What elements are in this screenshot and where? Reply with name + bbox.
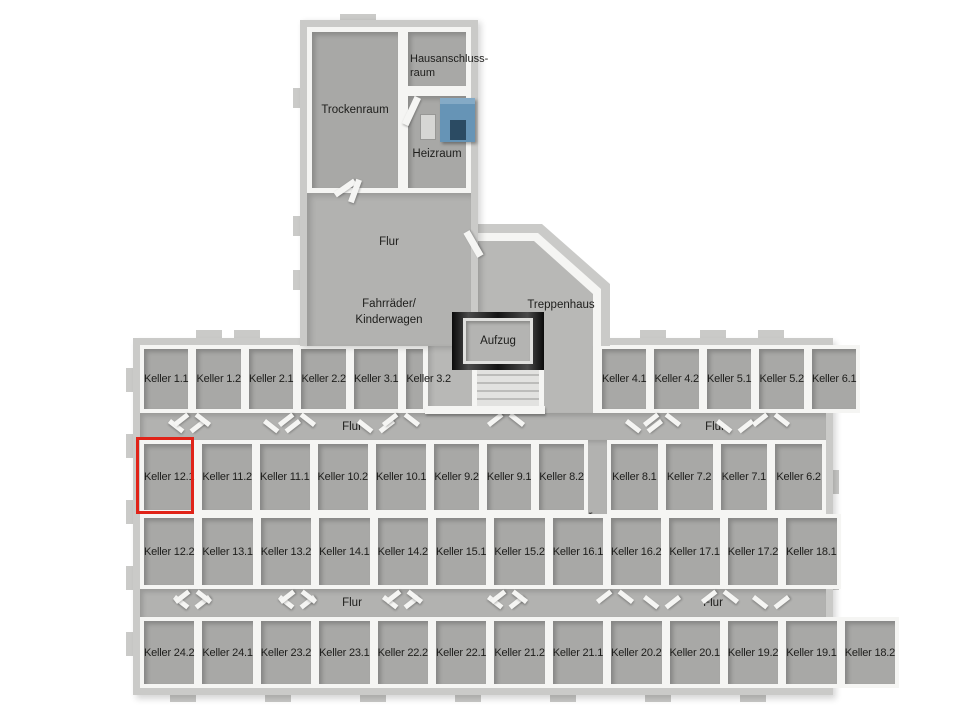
room-keller-22-1: Keller 22.1	[432, 617, 490, 688]
flur-label: Flur	[330, 597, 374, 609]
room-label: Treppenhaus	[500, 299, 622, 311]
room-label: Keller 16.1	[553, 546, 603, 558]
corridor-flur-lower: Flur Flur	[140, 589, 826, 617]
room-label: Heizraum	[408, 148, 466, 160]
room-label: Keller 8.1	[612, 471, 656, 483]
room-label: Keller 6.1	[812, 373, 856, 385]
room-label: Keller 23.1	[319, 647, 369, 659]
room-label: Keller 10.2	[318, 471, 368, 483]
room-keller-10-1: Keller 10.1	[372, 440, 430, 514]
upper-wing: Trockenraum Hausanschluss- raum Heizraum…	[300, 20, 478, 346]
room-keller-21-1: Keller 21.1	[549, 617, 607, 688]
room-label: Keller 7.2	[667, 471, 711, 483]
room-label: Keller 21.1	[553, 647, 603, 659]
room-keller-13-2: Keller 13.2	[257, 514, 315, 589]
room-label: raum	[410, 66, 466, 80]
room-keller-19-2: Keller 19.2	[724, 617, 782, 688]
room-label: Keller 2.2	[301, 373, 345, 385]
room-label: Keller 17.1	[669, 546, 719, 558]
room-label: Keller 19.1	[786, 647, 836, 659]
keller-row-2-left-group: Keller 12.1Keller 11.2Keller 11.1Keller …	[140, 440, 558, 514]
boiler-unit	[440, 98, 475, 142]
room-hausanschlussraum: Hausanschluss- raum	[403, 27, 471, 91]
room-label: Keller 14.2	[378, 546, 428, 558]
keller-row-2: Keller 12.1Keller 11.2Keller 11.1Keller …	[140, 440, 826, 514]
room-keller-4-2: Keller 4.2	[650, 345, 702, 413]
room-label: Keller 23.2	[261, 647, 311, 659]
wall-pillar	[360, 694, 386, 702]
room-keller-9-1: Keller 9.1	[483, 440, 535, 514]
room-keller-3-1: Keller 3.1	[350, 345, 402, 413]
room-label: Keller 10.1	[376, 471, 426, 483]
room-label: Keller 5.1	[707, 373, 751, 385]
room-label: Keller 19.2	[728, 647, 778, 659]
room-keller-2-1: Keller 2.1	[245, 345, 297, 413]
room-keller-12-2: Keller 12.2	[140, 514, 198, 589]
wall-pillar	[740, 694, 766, 702]
room-label: Keller 8.2	[539, 471, 583, 483]
room-label: Keller 21.2	[494, 647, 544, 659]
room-keller-17-1: Keller 17.1	[665, 514, 723, 589]
keller-row-3: Keller 12.2Keller 13.1Keller 13.2Keller …	[140, 514, 826, 589]
wall-pillar	[455, 694, 481, 702]
room-label: Keller 3.1	[354, 373, 398, 385]
room-label: Keller 16.2	[611, 546, 661, 558]
wall-pillar	[265, 694, 291, 702]
room-label: Keller 12.2	[144, 546, 194, 558]
room-keller-18-2: Keller 18.2	[841, 617, 899, 688]
room-keller-7-1: Keller 7.1	[717, 440, 772, 514]
room-keller-14-1: Keller 14.1	[315, 514, 373, 589]
room-label: Keller 22.1	[436, 647, 486, 659]
wall-pillar	[758, 330, 784, 338]
flur-label: Flur	[330, 421, 374, 433]
room-trockenraum: Trockenraum	[307, 27, 403, 193]
room-keller-15-2: Keller 15.2	[490, 514, 548, 589]
room-keller-11-1: Keller 11.1	[256, 440, 314, 514]
room-flur-fahrraeder: Flur Fahrräder/ Kinderwagen	[307, 193, 471, 346]
room-keller-16-2: Keller 16.2	[607, 514, 665, 589]
wall-pillar	[293, 270, 300, 290]
room-keller-5-1: Keller 5.1	[703, 345, 755, 413]
room-label: Keller 5.2	[759, 373, 803, 385]
room-label: Keller 18.2	[845, 647, 895, 659]
room-keller-8-1: Keller 8.1	[607, 440, 662, 514]
highlight-keller-12-1	[136, 437, 194, 514]
room-keller-24-2: Keller 24.2	[140, 617, 198, 688]
room-keller-9-2: Keller 9.2	[430, 440, 482, 514]
room-keller-20-2: Keller 20.2	[607, 617, 665, 688]
room-label: Keller 9.2	[434, 471, 478, 483]
room-keller-2-2: Keller 2.2	[297, 345, 349, 413]
room-keller-4-1: Keller 4.1	[598, 345, 650, 413]
room-label: Keller 1.2	[196, 373, 240, 385]
aufzug-cab: Aufzug	[463, 318, 533, 364]
room-label: Keller 1.1	[144, 373, 188, 385]
room-label: Keller 13.1	[202, 546, 252, 558]
keller-row-1-right-group: Keller 4.1Keller 4.2Keller 5.1Keller 5.2…	[598, 345, 826, 413]
flur-label: Flur	[693, 421, 737, 433]
wall-pillar	[640, 330, 666, 338]
aufzug-shaft: Aufzug	[452, 312, 544, 370]
room-keller-19-1: Keller 19.1	[782, 617, 840, 688]
room-keller-7-2: Keller 7.2	[662, 440, 717, 514]
room-keller-5-2: Keller 5.2	[755, 345, 807, 413]
wall-pillar	[170, 694, 196, 702]
room-keller-23-2: Keller 23.2	[257, 617, 315, 688]
room-label: Fahrräder/	[307, 298, 471, 310]
room-keller-14-2: Keller 14.2	[374, 514, 432, 589]
basement-floorplan: Keller 1.1Keller 1.2Keller 2.1Keller 2.2…	[0, 0, 960, 720]
room-keller-13-1: Keller 13.1	[198, 514, 256, 589]
room-label: Kinderwagen	[307, 314, 471, 326]
room-label: Keller 24.1	[202, 647, 252, 659]
wall-pillar	[550, 694, 576, 702]
room-label: Keller 13.2	[261, 546, 311, 558]
room-label: Keller 11.1	[260, 471, 310, 483]
room-keller-17-2: Keller 17.2	[724, 514, 782, 589]
room-label: Keller 4.2	[654, 373, 698, 385]
room-keller-18-1: Keller 18.1	[782, 514, 840, 589]
room-label: Keller 3.2	[406, 373, 450, 385]
room-label: Keller 24.2	[144, 647, 194, 659]
room-keller-1-2: Keller 1.2	[192, 345, 244, 413]
wall-segment	[425, 406, 545, 414]
keller-row-1-left-group: Keller 1.1Keller 1.2Keller 2.1Keller 2.2…	[140, 345, 423, 413]
room-keller-11-2: Keller 11.2	[198, 440, 256, 514]
room-label: Keller 2.1	[249, 373, 293, 385]
keller-row-4: Keller 24.2Keller 24.1Keller 23.2Keller …	[140, 617, 826, 688]
wall-pillar	[293, 88, 300, 108]
room-keller-22-2: Keller 22.2	[374, 617, 432, 688]
room-label: Keller 22.2	[378, 647, 428, 659]
room-label: Keller 6.2	[776, 471, 820, 483]
room-label: Aufzug	[480, 335, 516, 347]
boiler-side-unit	[420, 114, 436, 140]
keller-row-3-right-group: Keller 16.2Keller 17.1Keller 17.2Keller …	[607, 514, 826, 589]
room-keller-20-1: Keller 20.1	[666, 617, 724, 688]
room-keller-1-1: Keller 1.1	[140, 345, 192, 413]
room-label: Keller 18.1	[786, 546, 836, 558]
corridor-flur-upper: Flur Flur	[140, 413, 826, 440]
room-label: Keller 15.1	[436, 546, 486, 558]
keller-row-2-right-group: Keller 8.1Keller 7.2Keller 7.1Keller 6.2	[607, 440, 826, 514]
room-label: Keller 20.2	[611, 647, 661, 659]
room-keller-15-1: Keller 15.1	[432, 514, 490, 589]
flur-label: Flur	[307, 236, 471, 248]
room-keller-6-1: Keller 6.1	[808, 345, 860, 413]
wall-pillar	[645, 694, 671, 702]
room-keller-16-1: Keller 16.1	[549, 514, 607, 589]
keller-row-4-group: Keller 24.2Keller 24.1Keller 23.2Keller …	[140, 617, 826, 688]
room-label: Hausanschluss-	[410, 52, 466, 66]
wall-pillar	[196, 330, 222, 338]
room-label: Trockenraum	[321, 104, 388, 116]
wall-pillar	[234, 330, 260, 338]
room-keller-10-2: Keller 10.2	[314, 440, 372, 514]
room-keller-23-1: Keller 23.1	[315, 617, 373, 688]
room-keller-24-1: Keller 24.1	[198, 617, 256, 688]
room-keller-6-2: Keller 6.2	[771, 440, 826, 514]
wall-pillar	[700, 330, 726, 338]
room-label: Keller 4.1	[602, 373, 646, 385]
flur-label: Flur	[691, 597, 735, 609]
room-label: Keller 7.1	[722, 471, 766, 483]
room-label: Keller 11.2	[202, 471, 252, 483]
room-label: Keller 15.2	[494, 546, 544, 558]
room-label: Keller 20.1	[670, 647, 720, 659]
room-keller-8-2: Keller 8.2	[535, 440, 587, 514]
room-label: Keller 17.2	[728, 546, 778, 558]
wall-pillar	[293, 216, 300, 236]
room-keller-21-2: Keller 21.2	[490, 617, 548, 688]
room-label: Keller 14.1	[319, 546, 369, 558]
keller-row-3-left-group: Keller 12.2Keller 13.1Keller 13.2Keller …	[140, 514, 558, 589]
room-label: Keller 9.1	[487, 471, 531, 483]
